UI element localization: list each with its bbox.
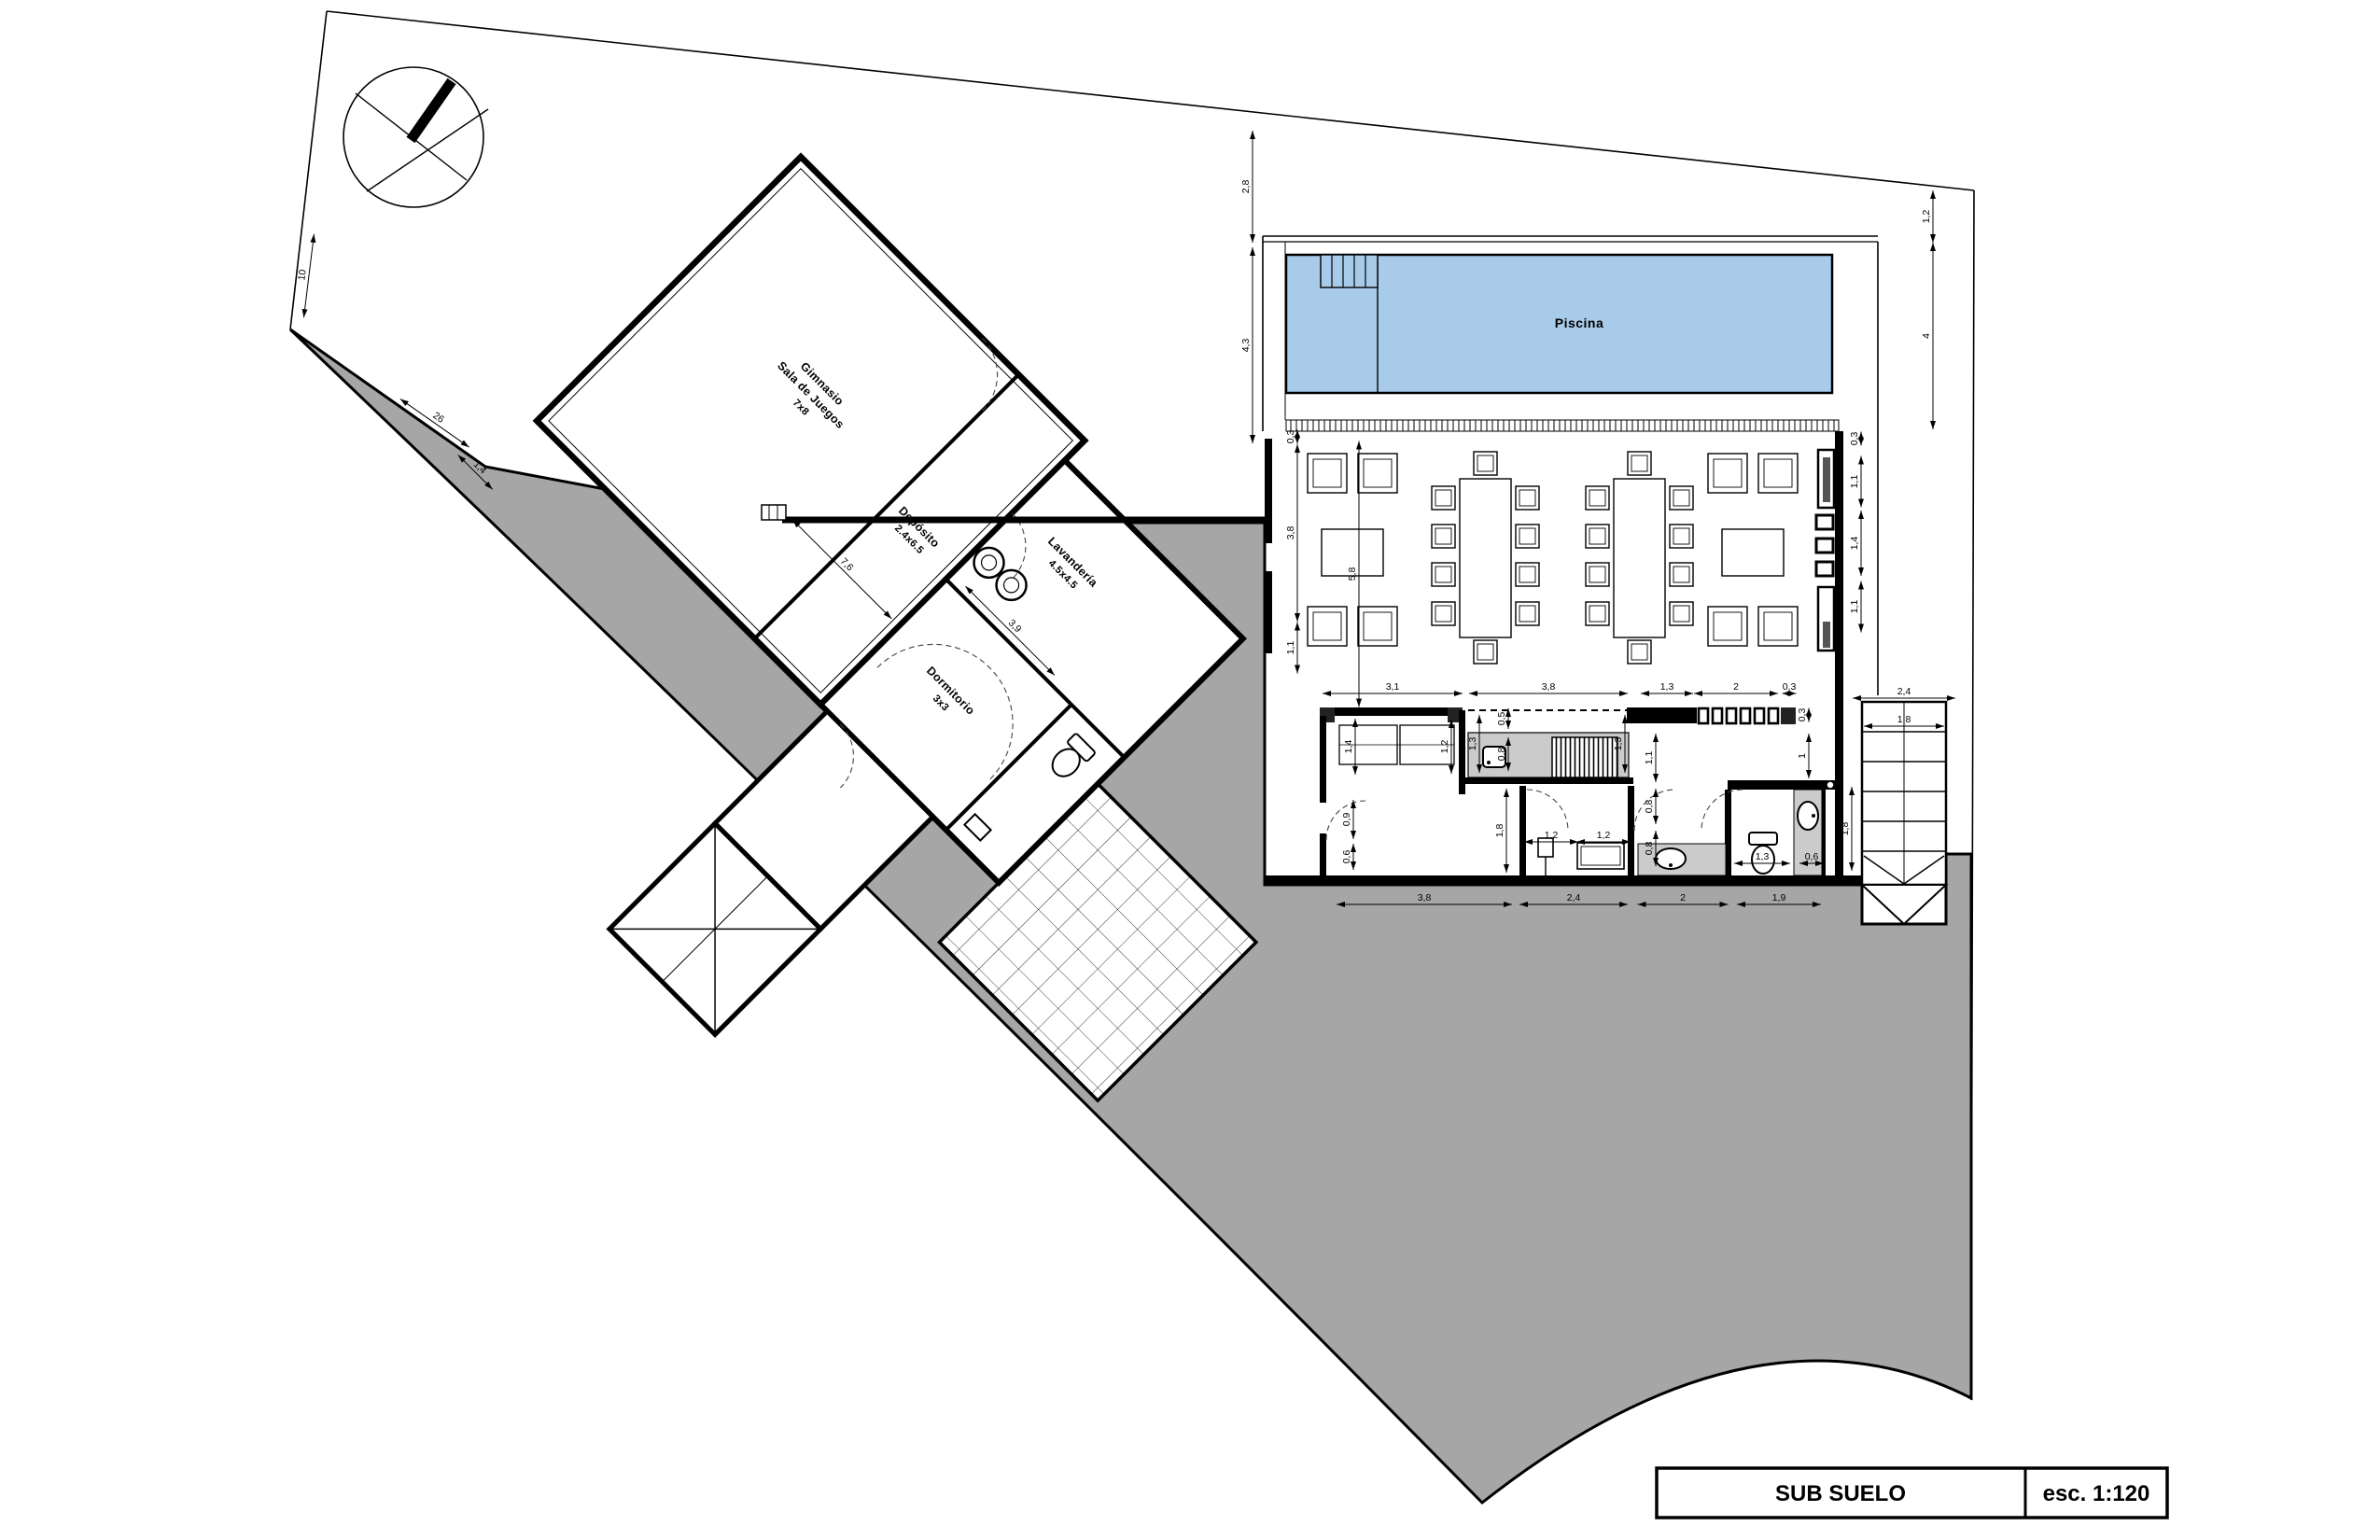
svg-text:1,2: 1,2 <box>1597 830 1611 841</box>
svg-text:0,3: 0,3 <box>1849 432 1860 446</box>
svg-text:4,3: 4,3 <box>1240 339 1252 353</box>
dimension-label: 1,4 <box>1849 511 1861 576</box>
pool-label: Piscina <box>1555 315 1604 330</box>
boundary-top <box>327 11 1974 190</box>
wall <box>1320 716 1326 803</box>
svg-text:2,4: 2,4 <box>1897 686 1911 697</box>
kitchenette <box>1461 733 1633 784</box>
stairs-main <box>1862 702 1946 924</box>
svg-text:0,5: 0,5 <box>1496 712 1507 726</box>
dimension-label: 1,2 <box>1576 830 1631 842</box>
pool-steps-box <box>1321 255 1378 287</box>
wall-cap <box>1781 707 1796 724</box>
wall <box>1320 707 1463 716</box>
door-swing <box>1701 790 1743 831</box>
coffee-table <box>1722 529 1784 576</box>
dimension-label: 1 <box>1797 734 1809 778</box>
svg-text:1,2: 1,2 <box>1545 830 1559 841</box>
svg-text:1,4: 1,4 <box>1849 537 1860 551</box>
svg-text:4: 4 <box>1921 333 1932 339</box>
dimension-label: 10 <box>292 232 315 317</box>
dimension-label: 2,4 <box>1853 686 1955 698</box>
svg-text:0,9: 0,9 <box>1341 813 1352 827</box>
door-swing <box>1527 790 1568 831</box>
grill-fixture <box>1552 737 1617 777</box>
svg-text:0,3: 0,3 <box>1285 430 1296 444</box>
dimension-label: 1,1 <box>1849 456 1861 508</box>
window-square <box>1755 708 1764 723</box>
dimension-label: 3,8 <box>1469 681 1628 693</box>
lower-rooms <box>1265 707 1862 886</box>
svg-text:0,8: 0,8 <box>1644 842 1655 856</box>
svg-text:1,2: 1,2 <box>1439 740 1450 754</box>
shelf-box <box>1816 515 1833 529</box>
dimension-label: 0,5 <box>1496 708 1508 729</box>
door-swings <box>1326 790 1743 840</box>
lounge-left-wall <box>1265 439 1272 543</box>
lamp-fixture <box>1538 838 1553 857</box>
pool: Piscina <box>1286 255 1832 393</box>
svg-text:1,1: 1,1 <box>1849 475 1860 489</box>
svg-text:0,8: 0,8 <box>1496 748 1507 762</box>
svg-text:1,9: 1,9 <box>1772 892 1786 903</box>
svg-text:1,1: 1,1 <box>1849 600 1860 614</box>
svg-text:2,8: 2,8 <box>1240 180 1252 194</box>
dimension-label: 0,8 <box>1644 789 1656 824</box>
window-square <box>1699 708 1708 723</box>
shelf-dark <box>1823 457 1830 502</box>
lounge-right-wall <box>1835 431 1843 885</box>
lounge-left-wall <box>1265 571 1272 653</box>
svg-text:1,8: 1,8 <box>1840 822 1851 836</box>
svg-text:1,2: 1,2 <box>1921 210 1932 224</box>
dimension-label: 2 <box>1694 681 1778 693</box>
wall-dot <box>1827 781 1834 789</box>
svg-text:1,1: 1,1 <box>1285 641 1296 655</box>
svg-text:10: 10 <box>296 269 308 281</box>
dimension-label: 1,3 <box>1641 681 1693 693</box>
svg-text:1,1: 1,1 <box>1644 751 1655 765</box>
dining-table <box>1460 479 1511 637</box>
title-block: SUB SUELO esc. 1:120 <box>1657 1468 2167 1518</box>
wall <box>1320 833 1326 875</box>
dimension-label: 1,8 <box>1494 789 1506 873</box>
dimension-label: 0,3 <box>1797 708 1809 722</box>
wall-thick <box>1627 707 1697 723</box>
toilet-tank <box>1749 833 1777 845</box>
dimension-label: 1,2 <box>1921 190 1933 243</box>
floor-plan-svg: Gimnasio Sala de Juegos 7x8 Depósito 2.4… <box>0 0 2380 1540</box>
window-strip <box>1699 707 1796 724</box>
svg-text:1,8: 1,8 <box>1494 824 1505 838</box>
svg-text:2,4: 2,4 <box>1567 892 1581 903</box>
faucet-dot <box>1669 863 1673 867</box>
door-swing <box>1634 790 1675 831</box>
walkway-steps <box>762 505 786 520</box>
svg-text:1,3: 1,3 <box>1756 851 1770 862</box>
svg-text:1,8: 1,8 <box>1897 714 1911 725</box>
svg-text:0,3: 0,3 <box>1783 681 1797 693</box>
dimension-label: 1,1 <box>1644 734 1656 782</box>
svg-text:1: 1 <box>1797 753 1808 759</box>
svg-text:2: 2 <box>1733 681 1739 693</box>
north-compass <box>343 67 488 207</box>
svg-text:1,4: 1,4 <box>1343 740 1354 754</box>
shelving <box>1816 450 1834 651</box>
window-square <box>1727 708 1736 723</box>
svg-text:2: 2 <box>1680 892 1686 903</box>
north-needle-icon <box>411 81 452 140</box>
svg-text:1,3: 1,3 <box>1613 737 1624 751</box>
window-wall-hatch <box>1286 420 1839 431</box>
dimension-label: 1,3 <box>1734 851 1790 863</box>
dimension-label: 5,8 <box>1347 441 1359 707</box>
svg-text:0,6: 0,6 <box>1805 851 1819 862</box>
sheet-scale: esc. 1:120 <box>2043 1481 2150 1506</box>
faucet-dot <box>1487 761 1491 764</box>
wall <box>1519 786 1526 875</box>
dimension-label: 0,6 <box>1341 844 1353 870</box>
dimension-label: 4,3 <box>1240 247 1253 443</box>
window-square <box>1769 708 1778 723</box>
dimension-label: 4 <box>1921 243 1933 429</box>
dimension-label: 2,8 <box>1240 131 1253 243</box>
floor-plan-canvas: Gimnasio Sala de Juegos 7x8 Depósito 2.4… <box>0 0 2380 1540</box>
svg-text:5,8: 5,8 <box>1347 567 1358 581</box>
svg-text:1,3: 1,3 <box>1467 737 1478 751</box>
svg-text:3,8: 3,8 <box>1418 892 1432 903</box>
svg-text:26: 26 <box>430 410 446 426</box>
dimension-label: 1,2 <box>1524 830 1578 842</box>
dimension-label: 1,1 <box>1285 623 1297 674</box>
wall <box>1728 780 1836 790</box>
sheet-title: SUB SUELO <box>1775 1481 1906 1506</box>
svg-text:0,6: 0,6 <box>1341 850 1352 864</box>
wall <box>1628 786 1634 875</box>
dimension-label: 0,3 <box>1783 681 1797 693</box>
svg-text:3,8: 3,8 <box>1542 681 1556 693</box>
shelf-dark <box>1823 622 1830 648</box>
pool-steps <box>1321 255 1378 287</box>
bottom-wall <box>1265 875 1862 886</box>
furniture-layer <box>1308 452 1798 664</box>
shelf-box <box>1816 562 1833 576</box>
stair-landing <box>1862 885 1946 924</box>
faucet-dot <box>1812 814 1815 818</box>
window-square <box>1713 708 1722 723</box>
window-square <box>1741 708 1750 723</box>
svg-text:1,3: 1,3 <box>1660 681 1674 693</box>
dimension-label: 3,8 <box>1285 444 1297 622</box>
shelf-box <box>1816 539 1833 553</box>
dimension-label: 0,3 <box>1285 430 1297 444</box>
dimension-label: 0,3 <box>1849 432 1861 446</box>
dimension-label: 1,1 <box>1849 581 1861 633</box>
svg-text:0,3: 0,3 <box>1797 708 1808 722</box>
dining-table <box>1614 479 1665 637</box>
dimension-label: 3,1 <box>1323 681 1463 693</box>
svg-text:3,1: 3,1 <box>1386 681 1400 693</box>
counter-front-wall <box>1461 777 1633 784</box>
svg-text:0,8: 0,8 <box>1644 800 1655 814</box>
svg-text:3,8: 3,8 <box>1285 526 1296 540</box>
bath-e <box>1749 790 1822 875</box>
